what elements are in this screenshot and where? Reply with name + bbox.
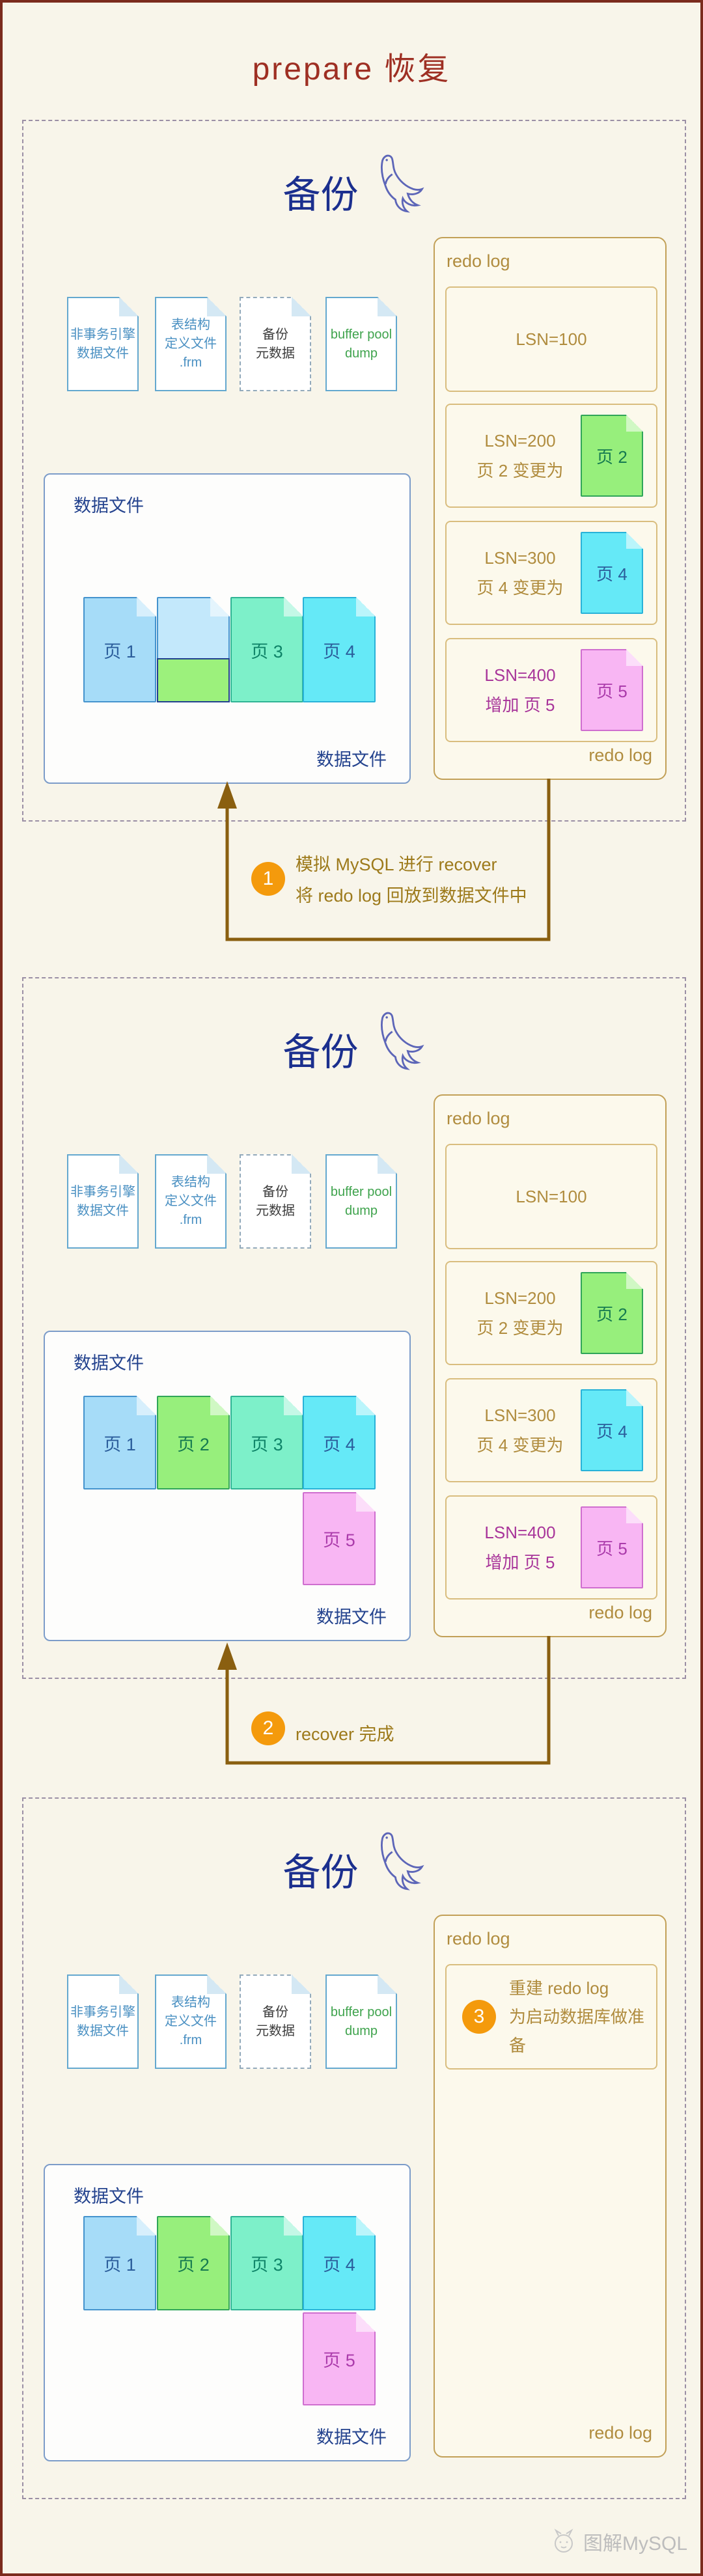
redo-page-2-icon: 页 2 xyxy=(581,415,643,497)
watermark-cat-icon xyxy=(551,2528,577,2555)
page-2-partial xyxy=(157,597,230,702)
datafile-label-top: 数据文件 xyxy=(74,492,144,517)
datafile-label-bottom: 数据文件 xyxy=(316,1603,387,1628)
step-2-text: recover 完成 xyxy=(296,1719,394,1750)
datafile-label-top: 数据文件 xyxy=(74,1349,144,1374)
watermark: 图解MySQL xyxy=(551,2527,687,2556)
redo-entry-lsn100: LSN=100 xyxy=(445,286,657,392)
page-title: prepare 恢复 xyxy=(3,43,700,89)
redo-entry-lsn400: LSN=400 增加 页 5 页 5 xyxy=(445,1495,657,1600)
redolog-label-top: redo log xyxy=(447,1109,510,1129)
doc-backup-metadata: 备份 元数据 xyxy=(240,1154,311,1249)
panel-backup-3: 备份 非事务引擎 数据文件 表结构 定义文件 .frm 备份 元数据 buffe… xyxy=(22,1797,686,2499)
datafile-box: 数据文件 数据文件 页 1 页 2 页 3 页 4 页 5 xyxy=(44,1331,411,1641)
redolog-box: redo log redo log LSN=100 LSN=200 页 2 变更… xyxy=(434,237,667,780)
step-1-badge: 1 xyxy=(251,862,285,896)
step-3-badge: 3 xyxy=(462,2000,496,2034)
redo-rebuild-note: 3 重建 redo log 为启动数据库做准备 xyxy=(445,1964,657,2070)
doc-frm-file: 表结构 定义文件 .frm xyxy=(155,1974,227,2069)
panel-backup-2: 备份 非事务引擎 数据文件 表结构 定义文件 .frm 备份 元数据 buffe… xyxy=(22,977,686,1679)
page-2: 页 2 xyxy=(157,2216,230,2310)
page-4: 页 4 xyxy=(303,597,376,702)
mysql-dolphin-icon xyxy=(364,1828,426,1893)
redolog-label-bottom: redo log xyxy=(588,2423,652,2443)
redo-page-4-icon: 页 4 xyxy=(581,532,643,614)
page-5: 页 5 xyxy=(303,1492,376,1585)
backup-title: 备份 xyxy=(283,1021,358,1076)
page-2-modified-half xyxy=(157,658,230,702)
mysql-dolphin-icon xyxy=(364,150,426,215)
redo-page-5-icon: 页 5 xyxy=(581,1506,643,1588)
step-3-text: 重建 redo log 为启动数据库做准备 xyxy=(509,1974,656,2060)
page-3: 页 3 xyxy=(230,1396,303,1489)
datafile-label-bottom: 数据文件 xyxy=(316,2423,387,2448)
backup-header: 备份 xyxy=(23,1010,685,1088)
page-5: 页 5 xyxy=(303,2312,376,2405)
datafile-box: 数据文件 数据文件 页 1 页 2 页 3 页 4 页 5 xyxy=(44,2164,411,2461)
mysql-dolphin-icon xyxy=(364,1008,426,1073)
doc-nontxn-datafile: 非事务引擎 数据文件 xyxy=(67,1974,139,2069)
doc-backup-metadata: 备份 元数据 xyxy=(240,1974,311,2069)
doc-bufferpool-dump: buffer pool dump xyxy=(325,297,397,391)
doc-bufferpool-dump: buffer pool dump xyxy=(325,1974,397,2069)
redo-entry-lsn100: LSN=100 xyxy=(445,1144,657,1249)
step-2-badge: 2 xyxy=(251,1711,285,1745)
doc-bufferpool-dump: buffer pool dump xyxy=(325,1154,397,1249)
backup-title: 备份 xyxy=(283,1842,358,1896)
backup-header: 备份 xyxy=(23,152,685,230)
page-4: 页 4 xyxy=(303,2216,376,2310)
backup-title: 备份 xyxy=(283,164,358,219)
redo-page-2-icon: 页 2 xyxy=(581,1272,643,1354)
redo-entry-lsn400: LSN=400 增加 页 5 页 5 xyxy=(445,638,657,742)
datafile-label-bottom: 数据文件 xyxy=(316,745,387,771)
page-1: 页 1 xyxy=(83,597,156,702)
recover-arrow-step2 xyxy=(3,1633,703,1803)
page-2: 页 2 xyxy=(157,1396,230,1489)
redolog-box: redo log redo log LSN=100 LSN=200 页 2 变更… xyxy=(434,1094,667,1637)
doc-frm-file: 表结构 定义文件 .frm xyxy=(155,297,227,391)
redolog-box: redo log redo log 3 重建 redo log 为启动数据库做准… xyxy=(434,1915,667,2458)
doc-nontxn-datafile: 非事务引擎 数据文件 xyxy=(67,297,139,391)
doc-backup-metadata: 备份 元数据 xyxy=(240,297,311,391)
page-4: 页 4 xyxy=(303,1396,376,1489)
redo-entry-lsn200: LSN=200 页 2 变更为 页 2 xyxy=(445,1261,657,1365)
redolog-label-top: redo log xyxy=(447,1929,510,1949)
backup-header: 备份 xyxy=(23,1830,685,1908)
redo-entry-lsn200: LSN=200 页 2 变更为 页 2 xyxy=(445,404,657,508)
step-1-text: 模拟 MySQL 进行 recover 将 redo log 回放到数据文件中 xyxy=(296,849,527,911)
redo-page-4-icon: 页 4 xyxy=(581,1389,643,1471)
redo-entry-lsn300: LSN=300 页 4 变更为 页 4 xyxy=(445,521,657,625)
redolog-label-top: redo log xyxy=(447,251,510,271)
page-3: 页 3 xyxy=(230,2216,303,2310)
datafile-label-top: 数据文件 xyxy=(74,2182,144,2208)
panel-backup-1: 备份 非事务引擎 数据文件 表结构 定义文件 .frm 备份 元数据 buffe… xyxy=(22,120,686,822)
page-3: 页 3 xyxy=(230,597,303,702)
page-1: 页 1 xyxy=(83,1396,156,1489)
page-1: 页 1 xyxy=(83,2216,156,2310)
redo-page-5-icon: 页 5 xyxy=(581,649,643,731)
redo-entry-lsn300: LSN=300 页 4 变更为 页 4 xyxy=(445,1378,657,1482)
watermark-text: 图解MySQL xyxy=(583,2527,687,2556)
redolog-label-bottom: redo log xyxy=(588,1603,652,1623)
doc-nontxn-datafile: 非事务引擎 数据文件 xyxy=(67,1154,139,1249)
doc-frm-file: 表结构 定义文件 .frm xyxy=(155,1154,227,1249)
diagram-canvas: prepare 恢复 备份 非事务引擎 数据文件 表结构 定义文件 .frm 备… xyxy=(0,0,703,2576)
datafile-box: 数据文件 数据文件 页 1 页 3 页 4 xyxy=(44,473,411,784)
redolog-label-bottom: redo log xyxy=(588,745,652,766)
